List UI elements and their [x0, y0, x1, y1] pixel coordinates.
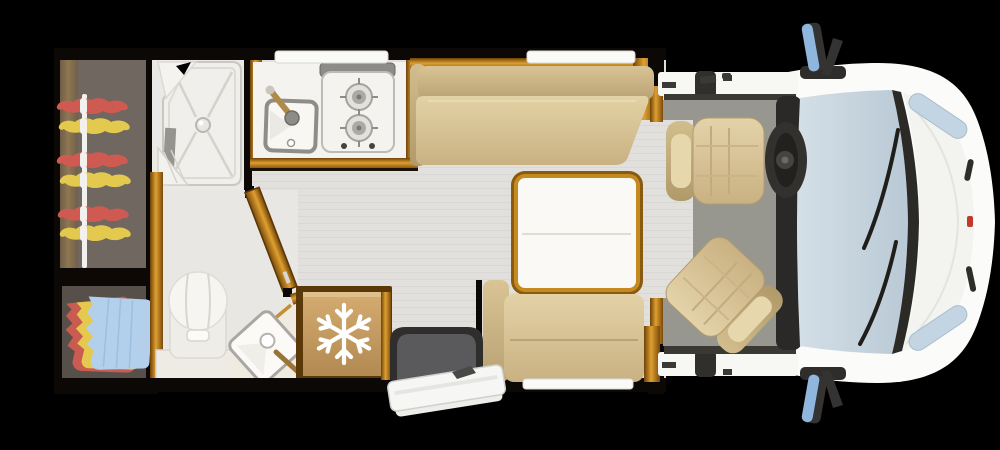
bench-backrest	[418, 66, 654, 100]
bathroom	[150, 172, 312, 385]
steering-wheel	[765, 122, 807, 198]
sink-drain	[288, 140, 295, 147]
toilet	[169, 272, 227, 358]
travel-seat-cushion	[504, 294, 644, 382]
folding-table	[511, 171, 643, 295]
two-burner-hob	[320, 63, 395, 152]
wardrobe-divider-wall	[54, 268, 158, 286]
badge-red	[967, 216, 973, 227]
window-lounge	[527, 51, 635, 63]
shower-drain	[196, 118, 210, 132]
windshield	[797, 90, 908, 354]
cab	[658, 22, 995, 425]
window-kitchen	[275, 51, 388, 63]
seatbelt-mount-bottom	[695, 350, 716, 377]
hob-knob	[369, 143, 375, 149]
travel-seat-wood-end	[644, 326, 660, 382]
kitchen	[250, 54, 420, 171]
hob-knob	[341, 143, 347, 149]
window-bottom	[523, 379, 633, 389]
side-bench-sofa	[416, 96, 649, 165]
driver-seat	[666, 118, 764, 204]
shower-room	[152, 52, 252, 198]
seatbelt-mount-top	[695, 71, 716, 98]
floorplan-canvas	[0, 0, 1000, 450]
refrigerator	[296, 286, 392, 382]
wardrobe-block	[54, 48, 158, 394]
folded-clothes-stack	[64, 296, 153, 375]
travel-seat-bench	[476, 280, 660, 382]
kitchen-counter-edge	[250, 158, 418, 169]
